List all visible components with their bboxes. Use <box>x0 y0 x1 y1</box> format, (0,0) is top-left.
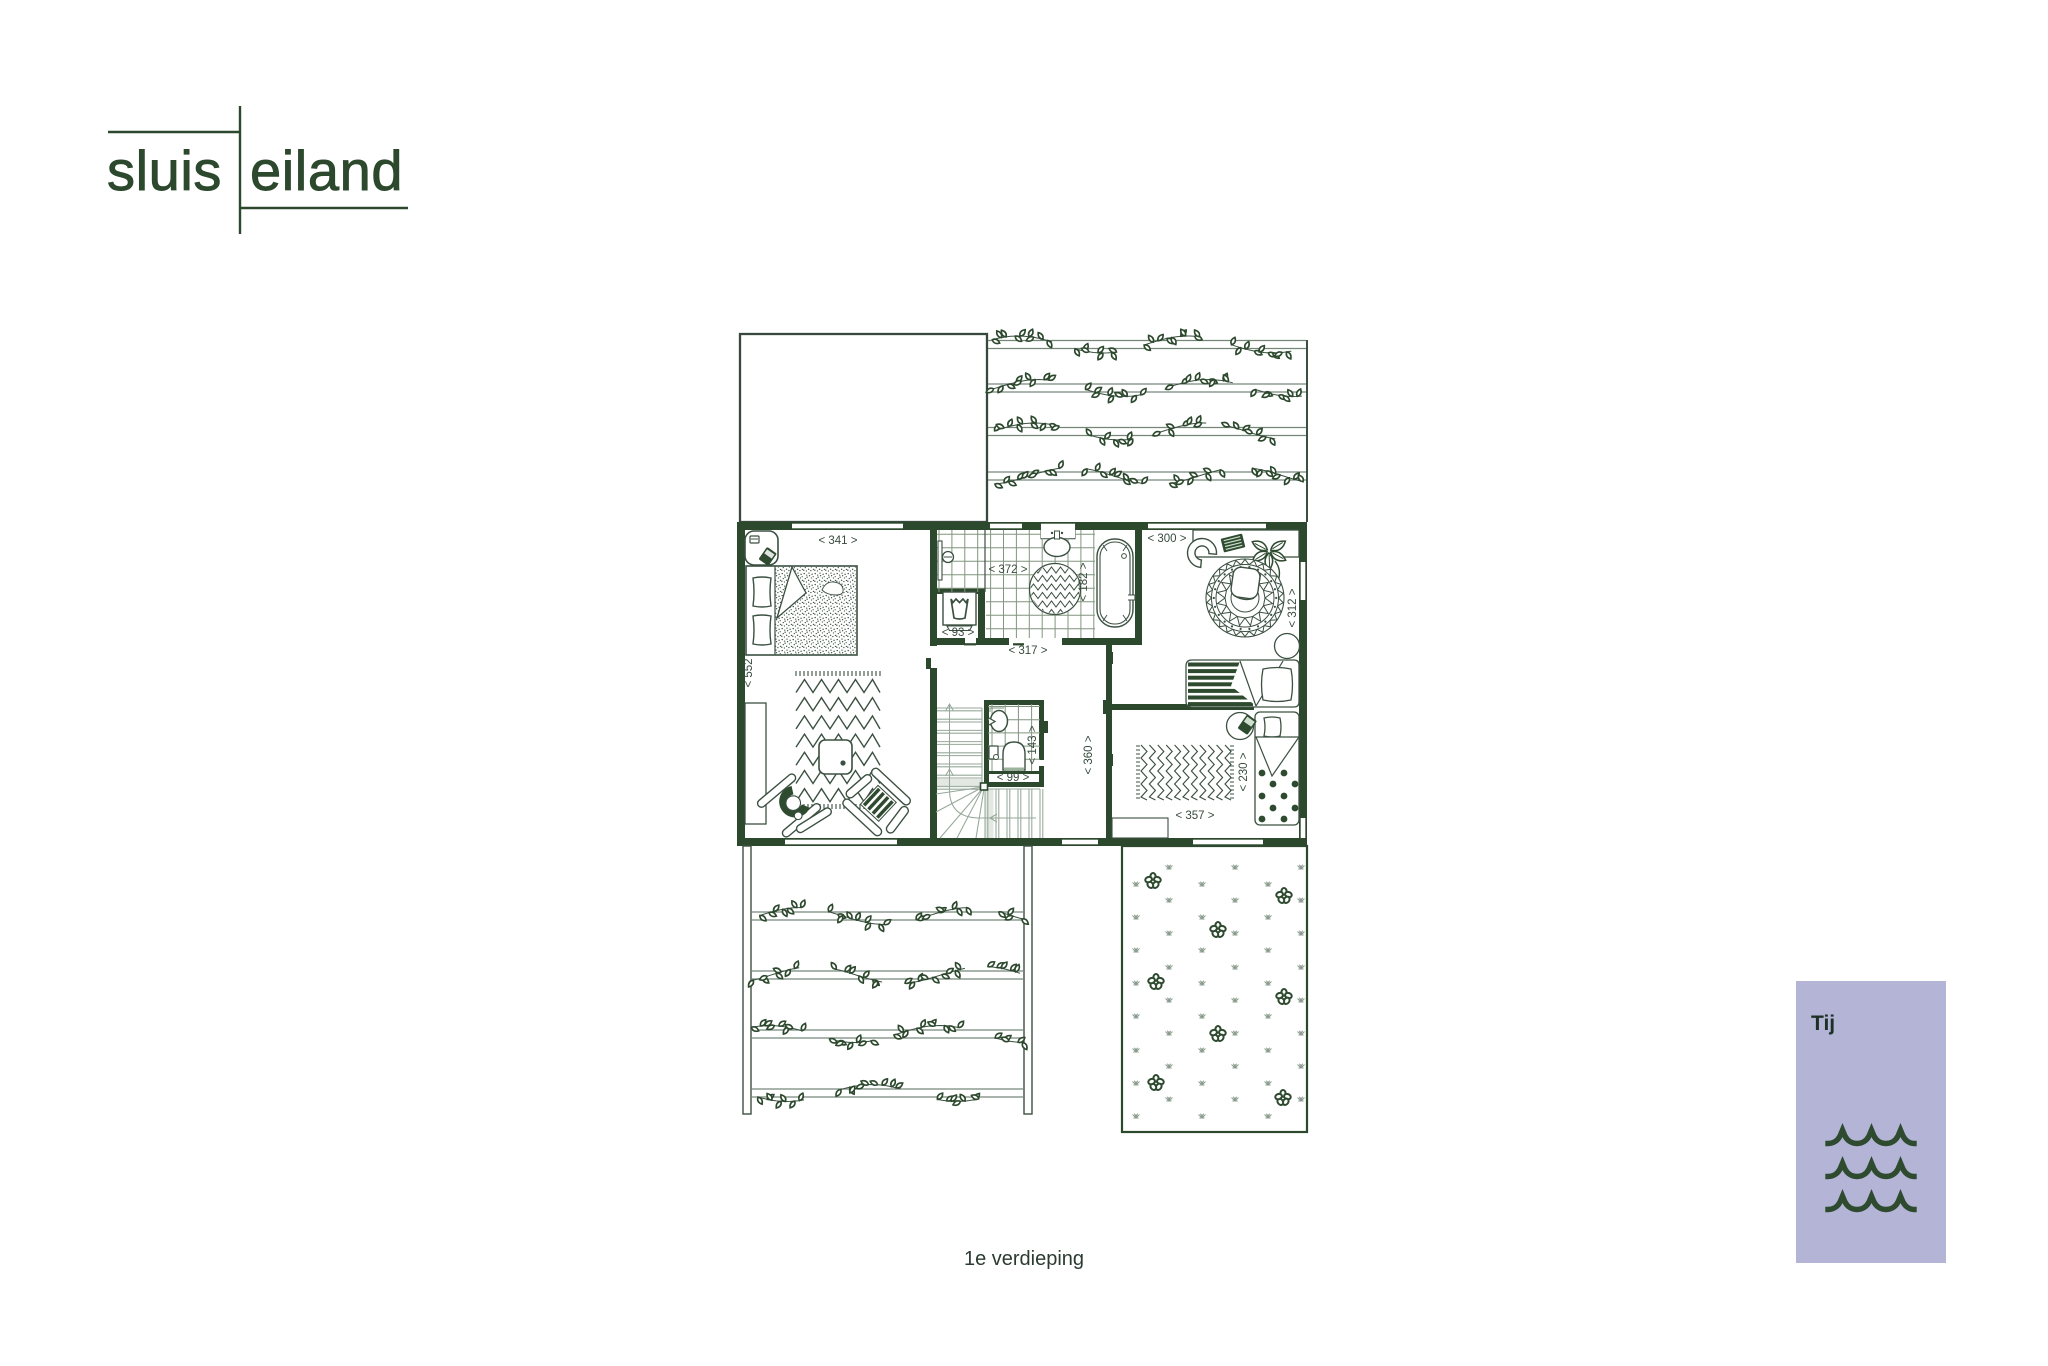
svg-text:sluis: sluis <box>107 139 222 202</box>
svg-text:< 230 >: < 230 > <box>1238 752 1250 791</box>
svg-text:eiland: eiland <box>250 139 403 202</box>
svg-text:< 360 >: < 360 > <box>1083 735 1095 774</box>
svg-text:< 372 >: < 372 > <box>988 564 1027 576</box>
svg-text:< 312 >: < 312 > <box>1287 588 1299 627</box>
svg-text:< 143 >: < 143 > <box>1027 725 1039 764</box>
svg-text:< 93 >: < 93 > <box>942 627 975 639</box>
svg-text:< 182 >: < 182 > <box>1078 562 1090 601</box>
svg-text:< 317 >: < 317 > <box>1008 645 1047 657</box>
svg-text:1e verdieping: 1e verdieping <box>964 1248 1084 1270</box>
svg-text:< 341 >: < 341 > <box>818 535 857 547</box>
svg-text:< 357 >: < 357 > <box>1175 810 1214 822</box>
svg-text:< 99 >: < 99 > <box>997 772 1030 784</box>
svg-text:Tij: Tij <box>1811 1012 1835 1035</box>
svg-text:< 300 >: < 300 > <box>1147 533 1186 545</box>
